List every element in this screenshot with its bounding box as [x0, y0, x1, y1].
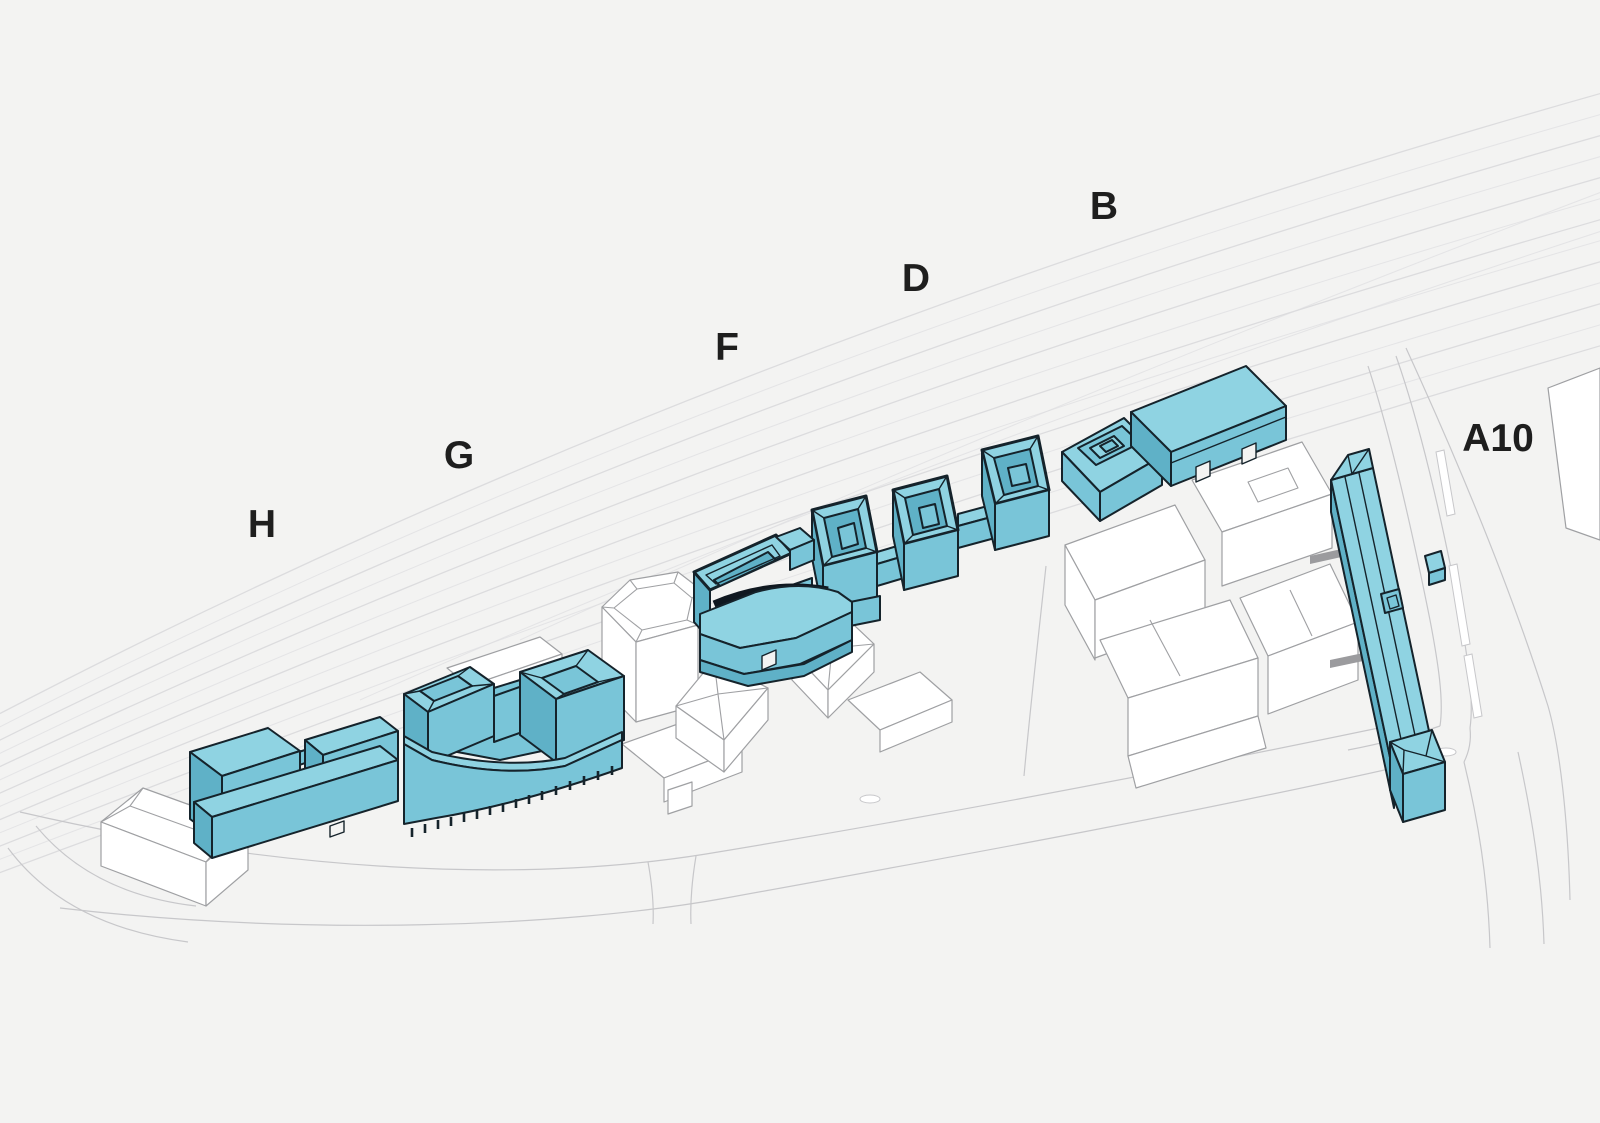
traffic-island [860, 795, 880, 803]
site-plan-diagram: B D F G H A10 [0, 0, 1600, 1123]
site-plan-canvas: B D F G H A10 [0, 0, 1600, 1123]
block-label-d: D [902, 257, 930, 300]
block-label-g: G [444, 434, 474, 477]
block-label-b: B [1090, 185, 1118, 228]
block-label-h: H [248, 503, 276, 546]
block-label-f: F [715, 326, 739, 369]
block-label-a10: A10 [1462, 417, 1534, 460]
